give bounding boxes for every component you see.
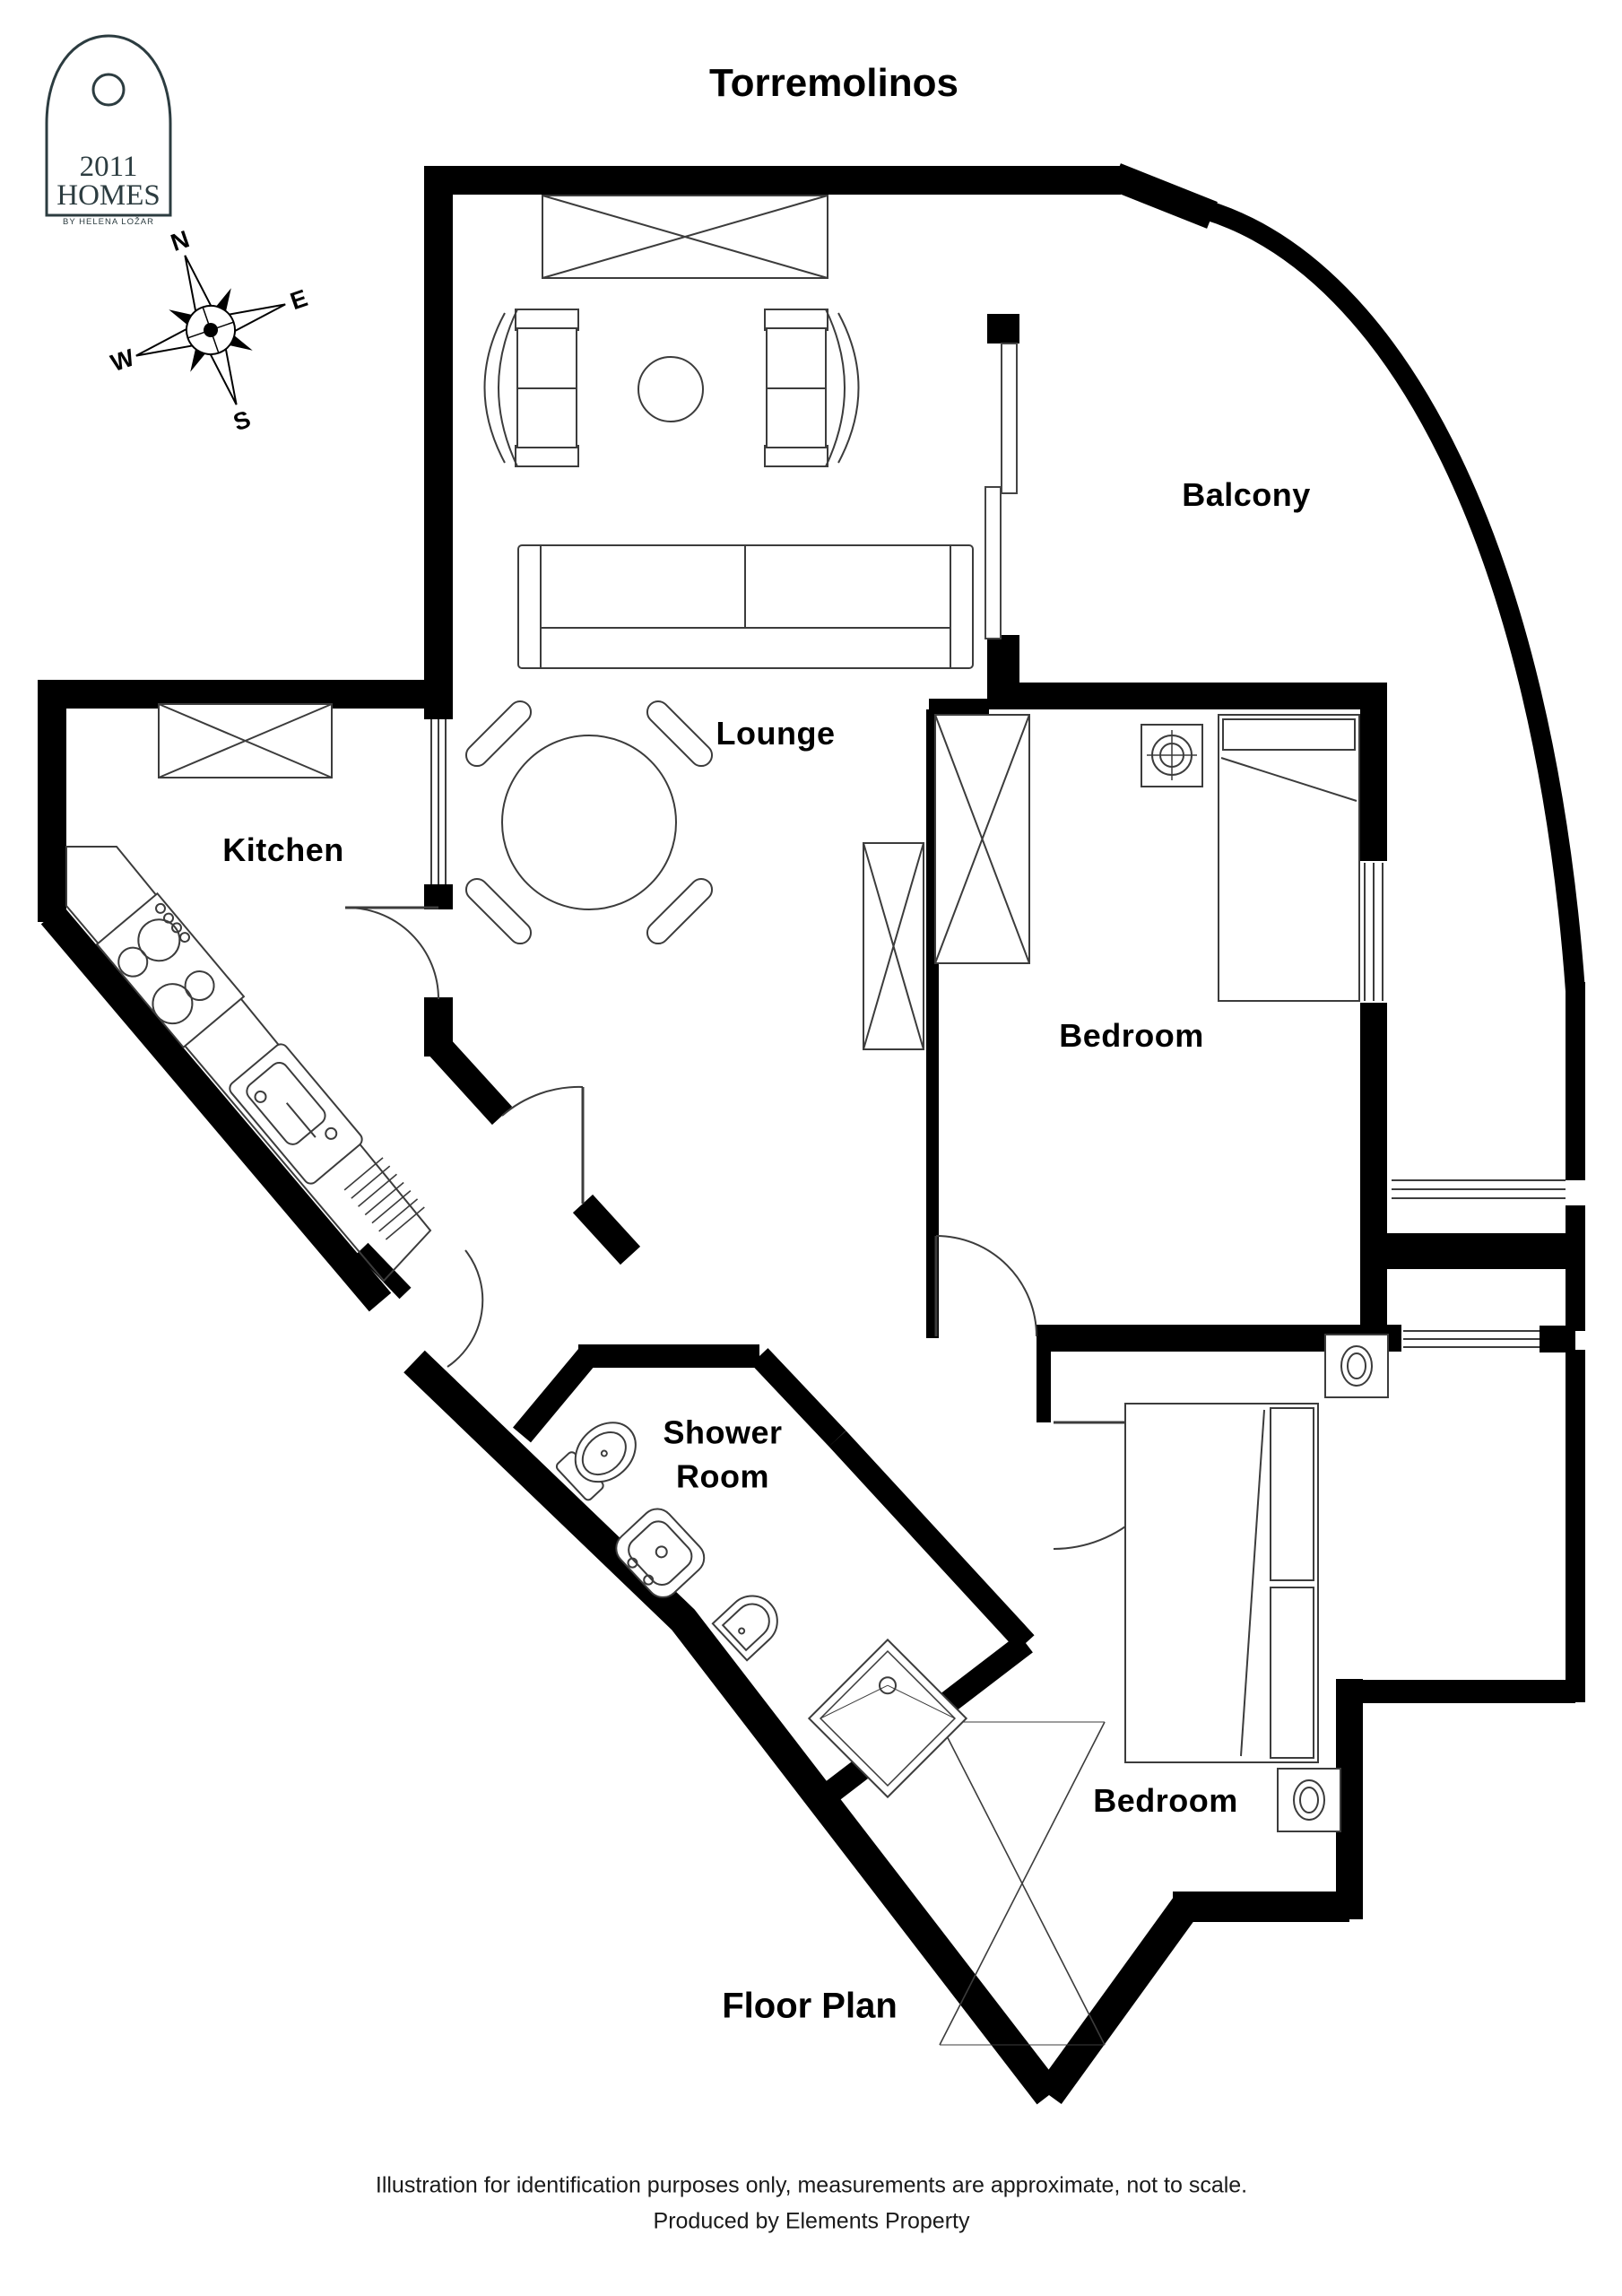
sofa <box>518 545 973 668</box>
logo: 2011 HOMES BY HELENA LOŽAR <box>47 36 170 227</box>
bedroom1-bed <box>1219 715 1359 1001</box>
dining-table <box>462 697 716 948</box>
bedroom2-wardrobe <box>940 1722 1105 2045</box>
logo-name: HOMES <box>56 179 160 212</box>
bedroom1-window <box>1365 863 1383 1001</box>
bedroom2-bed <box>1125 1404 1318 1762</box>
balcony-end-window <box>1392 1180 1566 1198</box>
bedroom2-corner-window <box>1403 1331 1540 1347</box>
kitchen-lounge-window <box>431 719 446 884</box>
kitchen-unit <box>159 704 332 778</box>
kitchen-door <box>345 908 438 999</box>
bedroom1-door <box>936 1236 1037 1336</box>
room-label-shower-line1: Shower <box>663 1411 782 1455</box>
lounge-wardrobe <box>863 843 924 1049</box>
logo-year: 2011 <box>80 151 138 183</box>
compass-s: S <box>230 405 254 436</box>
lounge-furniture <box>462 196 973 1049</box>
bedroom1-wardrobe <box>935 715 1029 963</box>
lounge-cabinet <box>542 196 828 278</box>
floorplan-drawing: N E S W 2011 HOMES BY HELENA LOŽAR <box>0 0 1622 2296</box>
hall-door <box>502 1087 583 1204</box>
side-table <box>638 357 703 422</box>
balcony-sliding-door <box>985 314 1019 705</box>
footer-producer: Produced by Elements Property <box>654 2209 970 2235</box>
bedroom2-bedside-top <box>1325 1335 1388 1397</box>
room-label-kitchen: Kitchen <box>222 831 344 869</box>
floorplan-page: N E S W 2011 HOMES BY HELENA LOŽAR Torre… <box>0 0 1622 2296</box>
room-label-bedroom1: Bedroom <box>1059 1017 1204 1055</box>
compass-n: N <box>168 225 193 257</box>
bedroom1-furniture <box>935 715 1359 1001</box>
compass-w: W <box>108 344 138 377</box>
compass-e: E <box>287 284 311 315</box>
bathroom-sink <box>610 1502 711 1604</box>
bedroom2-bedside-bottom <box>1278 1769 1340 1831</box>
room-label-bedroom2: Bedroom <box>1093 1782 1238 1820</box>
compass-icon: N E S W <box>77 196 343 468</box>
room-label-balcony: Balcony <box>1182 476 1311 514</box>
plan-caption: Floor Plan <box>722 1987 898 2027</box>
logo-byline: BY HELENA LOŽAR <box>63 217 154 227</box>
armchair-right <box>765 309 859 466</box>
room-label-shower-line2: Room <box>663 1455 782 1499</box>
bedroom1-bedside-table <box>1141 725 1202 787</box>
stove <box>97 893 244 1047</box>
page-title: Torremolinos <box>709 61 958 106</box>
entrance-door <box>362 1248 482 1367</box>
armchair-left <box>485 309 579 466</box>
room-label-shower: Shower Room <box>663 1411 782 1498</box>
footer-disclaimer: Illustration for identification purposes… <box>376 2173 1247 2199</box>
shower-tray <box>809 1639 966 1796</box>
drainer <box>344 1158 424 1239</box>
room-label-lounge: Lounge <box>716 715 836 752</box>
